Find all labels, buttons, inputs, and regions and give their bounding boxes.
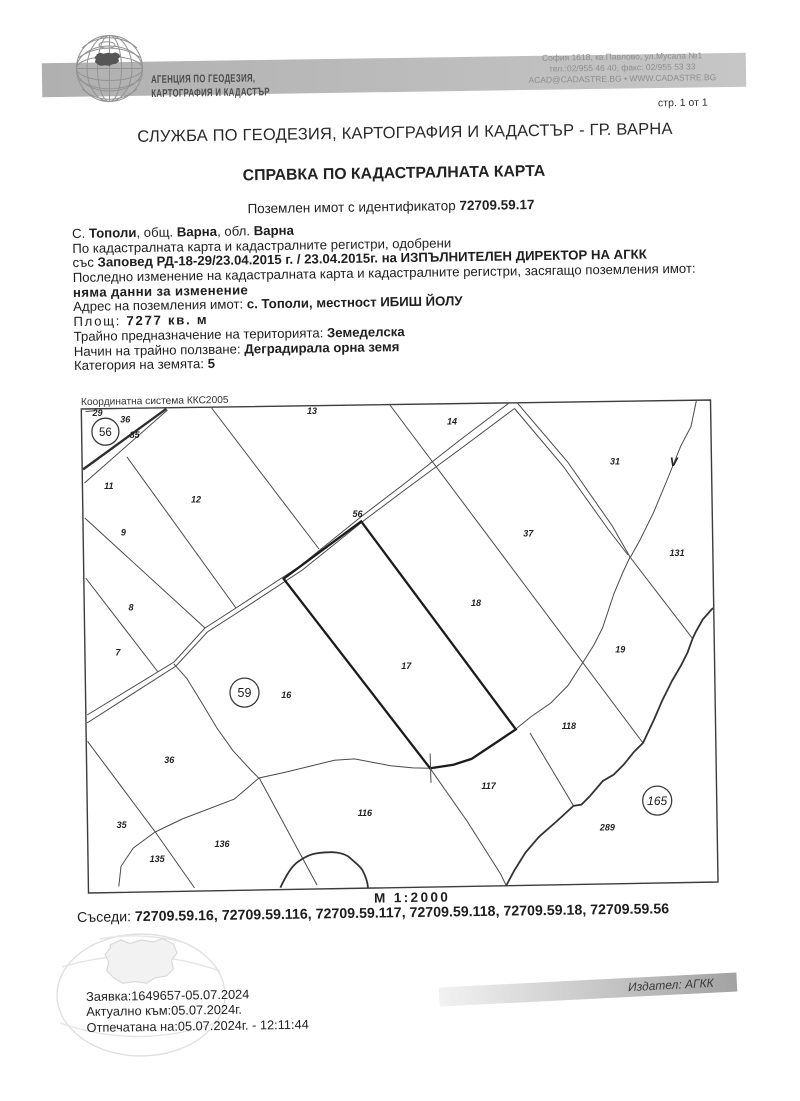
svg-text:18: 18 [471, 598, 481, 608]
svg-text:13: 13 [307, 406, 317, 416]
svg-text:59: 59 [238, 686, 252, 700]
svg-text:118: 118 [562, 721, 576, 731]
svg-text:37: 37 [523, 529, 534, 539]
svg-text:12: 12 [191, 495, 201, 505]
svg-text:V: V [670, 455, 679, 469]
svg-text:36: 36 [164, 755, 175, 765]
svg-text:85: 85 [130, 430, 141, 440]
svg-text:17: 17 [401, 661, 412, 671]
svg-text:136: 136 [214, 839, 230, 849]
svg-text:135: 135 [150, 854, 166, 864]
svg-text:165: 165 [647, 794, 667, 808]
svg-text:7: 7 [115, 648, 121, 658]
svg-text:14: 14 [447, 417, 457, 427]
svg-text:29: 29 [91, 408, 102, 418]
svg-text:31: 31 [610, 457, 620, 467]
svg-text:8: 8 [128, 603, 133, 613]
svg-text:19: 19 [615, 645, 625, 655]
svg-text:289: 289 [599, 823, 615, 833]
svg-text:56: 56 [99, 427, 112, 439]
svg-text:11: 11 [104, 481, 113, 491]
svg-text:131: 131 [669, 548, 684, 558]
svg-text:35: 35 [117, 820, 128, 830]
svg-text:36: 36 [120, 415, 131, 425]
svg-text:56: 56 [352, 509, 363, 519]
svg-text:9: 9 [121, 528, 126, 538]
svg-text:116: 116 [358, 808, 373, 818]
svg-text:16: 16 [281, 690, 292, 700]
svg-text:117: 117 [481, 781, 496, 791]
